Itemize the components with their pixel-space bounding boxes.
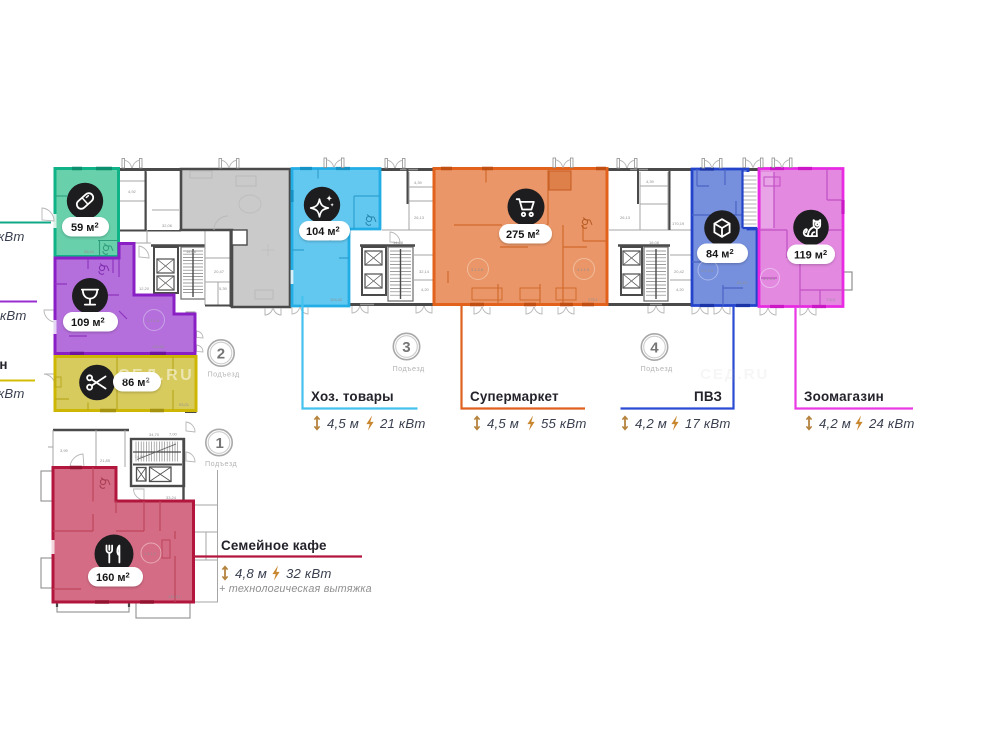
svg-text:33,24: 33,24 xyxy=(166,495,177,500)
svg-text:14,08: 14,08 xyxy=(393,240,404,245)
svg-text:35,40: 35,40 xyxy=(84,249,95,254)
svg-text:Супермаркет: Супермаркет xyxy=(470,389,559,404)
svg-text:Семейное кафе: Семейное кафе xyxy=(221,538,327,553)
svg-text:20,47: 20,47 xyxy=(214,269,225,274)
svg-text:2.1.1.6: 2.1.1.6 xyxy=(147,318,160,323)
svg-text:26,13: 26,13 xyxy=(414,215,425,220)
svg-text:кВт: кВт xyxy=(0,386,25,401)
svg-text:275,1: 275,1 xyxy=(588,297,599,302)
svg-text:24 кВт: 24 кВт xyxy=(868,416,915,431)
svg-text:4.1.1.5: 4.1.1.5 xyxy=(577,267,590,272)
svg-text:3: 3 xyxy=(402,339,410,356)
svg-text:109 м2: 109 м2 xyxy=(71,316,105,330)
svg-text:160 м2: 160 м2 xyxy=(96,571,130,585)
svg-text:14,08: 14,08 xyxy=(186,249,197,254)
svg-text:34,70: 34,70 xyxy=(149,432,160,437)
svg-text:4.1.2.5: 4.1.2.5 xyxy=(701,268,714,273)
svg-text:21,85: 21,85 xyxy=(100,458,111,463)
svg-text:20,42: 20,42 xyxy=(674,269,685,274)
svg-text:+ технологическая вытяжка: + технологическая вытяжка xyxy=(219,583,372,595)
svg-text:93,01: 93,01 xyxy=(179,402,190,407)
svg-text:104,42: 104,42 xyxy=(330,297,343,302)
svg-text:3,99: 3,99 xyxy=(60,448,69,453)
svg-text:Хоз. товары: Хоз. товары xyxy=(311,389,394,404)
svg-text:139,06: 139,06 xyxy=(152,344,165,349)
svg-text:21 кВт: 21 кВт xyxy=(379,416,426,431)
svg-text:Подъезд: Подъезд xyxy=(205,459,238,468)
svg-text:32,06: 32,06 xyxy=(162,223,173,228)
svg-text:7,5,3: 7,5,3 xyxy=(826,297,836,302)
svg-text:Подъезд: Подъезд xyxy=(208,370,241,379)
svg-text:55 кВт: 55 кВт xyxy=(541,416,587,431)
svg-text:4,92: 4,92 xyxy=(128,189,137,194)
svg-text:104 м2: 104 м2 xyxy=(306,225,340,239)
svg-text:СЕД.RU: СЕД.RU xyxy=(118,367,194,384)
svg-text:16,08: 16,08 xyxy=(649,240,660,245)
svg-text:275 м2: 275 м2 xyxy=(506,228,540,242)
svg-text:170,19: 170,19 xyxy=(672,221,685,226)
svg-text:2: 2 xyxy=(217,345,225,362)
svg-text:ПВЗ: ПВЗ xyxy=(694,389,722,404)
svg-text:1: 1 xyxy=(216,435,224,452)
svg-text:5,39: 5,39 xyxy=(219,286,228,291)
svg-text:4,39: 4,39 xyxy=(414,180,423,185)
svg-text:4.1.3.5: 4.1.3.5 xyxy=(763,276,776,281)
svg-text:65,20: 65,20 xyxy=(737,280,748,285)
svg-text:32,14: 32,14 xyxy=(419,269,430,274)
svg-text:Подъезд: Подъезд xyxy=(641,364,674,373)
svg-text:26,13: 26,13 xyxy=(620,215,631,220)
svg-text:17 кВт: 17 кВт xyxy=(685,416,731,431)
svg-text:4: 4 xyxy=(650,339,659,356)
svg-text:кВт: кВт xyxy=(0,308,27,323)
svg-text:4,20: 4,20 xyxy=(676,287,685,292)
svg-text:4,39: 4,39 xyxy=(646,179,655,184)
svg-text:7,00: 7,00 xyxy=(169,432,178,437)
svg-text:он: он xyxy=(0,357,8,372)
svg-text:4,2 м: 4,2 м xyxy=(819,416,851,431)
svg-text:12,20: 12,20 xyxy=(139,286,150,291)
svg-text:1.1.1.2: 1.1.1.2 xyxy=(144,551,157,556)
svg-text:кВт: кВт xyxy=(0,229,25,244)
svg-text:4,8 м: 4,8 м xyxy=(235,566,267,581)
svg-text:119 м2: 119 м2 xyxy=(794,248,827,262)
svg-text:4,2 м: 4,2 м xyxy=(635,416,667,431)
svg-text:4,5 м: 4,5 м xyxy=(487,416,519,431)
svg-text:4,20: 4,20 xyxy=(421,287,430,292)
svg-text:139,01: 139,01 xyxy=(168,594,181,599)
svg-text:Подъезд: Подъезд xyxy=(393,364,426,373)
svg-text:14,05: 14,05 xyxy=(135,454,146,459)
svg-text:32 кВт: 32 кВт xyxy=(286,566,332,581)
svg-text:4,5 м: 4,5 м xyxy=(327,416,359,431)
svg-text:Зоомагазин: Зоомагазин xyxy=(804,389,884,404)
svg-text:СЕД.RU: СЕД.RU xyxy=(700,366,769,383)
svg-text:3.1.2.6: 3.1.2.6 xyxy=(471,267,484,272)
